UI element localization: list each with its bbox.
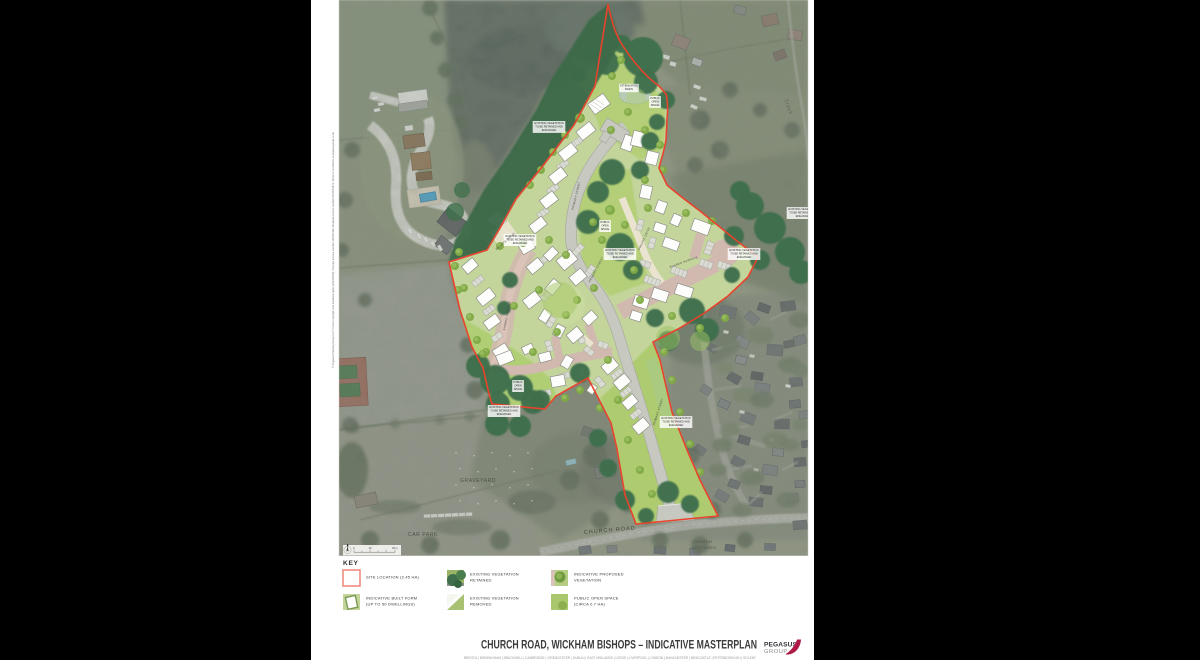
svg-text:TO BE RETAINED AND: TO BE RETAINED AND xyxy=(535,125,563,129)
svg-text:PUBLIC: PUBLIC xyxy=(650,96,659,100)
svg-text:OPEN: OPEN xyxy=(651,100,658,104)
svg-text:GROUP: GROUP xyxy=(764,649,788,655)
svg-text:EXISTING VEGETATION: EXISTING VEGETATION xyxy=(470,596,519,601)
svg-text:TO BE RETAINED AND: TO BE RETAINED AND xyxy=(730,252,758,256)
svg-text:OPEN: OPEN xyxy=(514,383,521,387)
svg-text:(CIRCA 0.7 HA): (CIRCA 0.7 HA) xyxy=(574,602,605,607)
svg-text:PUBLIC OPEN SPACE: PUBLIC OPEN SPACE xyxy=(574,596,619,601)
svg-text:EXISTING VEGETATION: EXISTING VEGETATION xyxy=(661,416,690,420)
svg-text:TO BE RETAINED AND: TO BE RETAINED AND xyxy=(606,252,634,256)
svg-text:BRISTOL | BIRMINGHAM | BRACKNE: BRISTOL | BIRMINGHAM | BRACKNELL | CAMBR… xyxy=(464,656,756,660)
svg-text:© Pegasus Planning Group Ltd ©: © Pegasus Planning Group Ltd © Crown cop… xyxy=(331,131,335,368)
svg-text:VEGETATION: VEGETATION xyxy=(574,578,601,583)
svg-text:ENHANCED: ENHANCED xyxy=(737,255,752,259)
svg-text:PEGASUS: PEGASUS xyxy=(764,642,797,649)
svg-text:KEY: KEY xyxy=(343,560,359,567)
svg-text:ATTENUATION: ATTENUATION xyxy=(620,84,638,88)
svg-text:(UP TO 50 DWELLINGS): (UP TO 50 DWELLINGS) xyxy=(366,602,415,607)
svg-text:OPEN: OPEN xyxy=(601,224,608,228)
svg-text:TO BE RETAINED AND: TO BE RETAINED AND xyxy=(662,419,690,423)
svg-text:INDICATIVE PROPOSED: INDICATIVE PROPOSED xyxy=(574,572,624,577)
svg-text:ENHANCED: ENHANCED xyxy=(613,255,628,259)
svg-text:EXISTING VEGETATION: EXISTING VEGETATION xyxy=(729,248,758,252)
svg-text:SPACE: SPACE xyxy=(651,103,660,107)
svg-text:PUBLIC: PUBLIC xyxy=(600,220,609,224)
svg-text:TO BE RETAINED AND: TO BE RETAINED AND xyxy=(490,408,518,412)
svg-text:25 m: 25 m xyxy=(392,546,398,550)
svg-text:REMOVED: REMOVED xyxy=(470,602,492,607)
svg-text:SPACE: SPACE xyxy=(514,387,523,391)
svg-text:INDICATIVE BUILT FORM: INDICATIVE BUILT FORM xyxy=(366,596,417,601)
svg-text:ENHANCED: ENHANCED xyxy=(513,241,528,245)
svg-text:ENHANCED: ENHANCED xyxy=(542,128,557,132)
svg-text:EXISTING VEGETATION: EXISTING VEGETATION xyxy=(489,405,518,409)
svg-text:RETAINED: RETAINED xyxy=(470,578,492,583)
svg-text:SPACE: SPACE xyxy=(601,227,610,231)
svg-text:PUBLIC: PUBLIC xyxy=(513,380,522,384)
svg-text:SITE LOCATION (2.45 HA): SITE LOCATION (2.45 HA) xyxy=(366,575,419,580)
svg-text:EXISTING VEGETATION: EXISTING VEGETATION xyxy=(605,248,634,252)
svg-text:BASIN: BASIN xyxy=(625,87,633,91)
svg-text:EXISTING VEGETATION: EXISTING VEGETATION xyxy=(534,121,563,125)
svg-text:ENHANCED: ENHANCED xyxy=(497,412,512,416)
svg-text:EXISTING VEGETATION: EXISTING VEGETATION xyxy=(470,572,519,577)
svg-text:ENHANCED: ENHANCED xyxy=(669,423,684,427)
svg-text:CHURCH ROAD, WICKHAM BISHOPS –: CHURCH ROAD, WICKHAM BISHOPS – INDICATIV… xyxy=(481,639,757,652)
